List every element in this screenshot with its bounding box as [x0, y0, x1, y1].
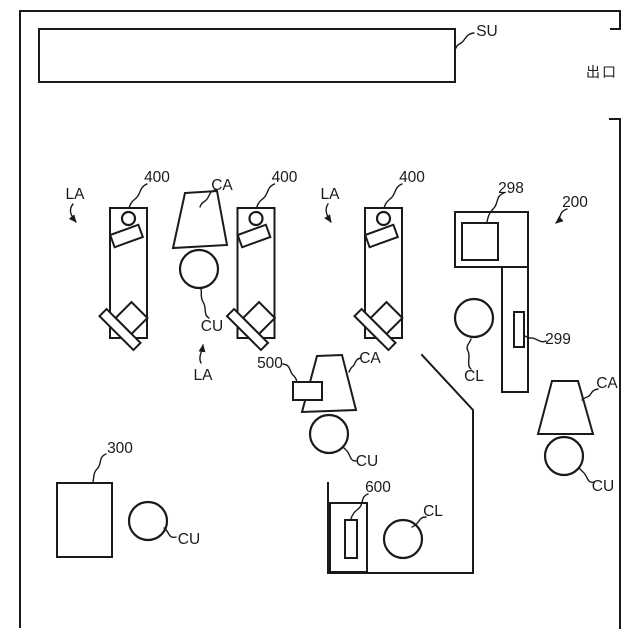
su-leader — [456, 33, 474, 48]
box-600-inner — [345, 520, 357, 558]
label-cu-3: CU — [592, 478, 614, 495]
cu-1-leader — [201, 289, 209, 318]
label-200: 200 — [562, 194, 588, 211]
label-la-1: LA — [66, 186, 86, 203]
rect-500 — [293, 382, 322, 400]
la-arrow-1 — [70, 204, 76, 222]
label-cu-1: CU — [201, 318, 223, 335]
label-su: SU — [476, 23, 498, 40]
trapezoid-ca-1 — [173, 191, 227, 248]
rect-299 — [514, 312, 524, 347]
trapezoid-ca-3 — [538, 381, 593, 434]
label-ca-3: CA — [596, 375, 618, 392]
station-400-2 — [227, 184, 275, 350]
circle-cu-4 — [129, 502, 167, 540]
la-arrow-2 — [326, 204, 331, 222]
cl-1-leader — [467, 339, 471, 369]
label-400-1: 400 — [144, 169, 170, 186]
label-cu-4: CU — [178, 531, 200, 548]
la-arrow-3 — [200, 345, 203, 363]
station-400-1 — [99, 184, 147, 350]
label-cl-1: CL — [464, 368, 484, 385]
label-exit: 出口 — [586, 64, 618, 80]
su-unit-rect — [39, 29, 455, 82]
leader-300 — [93, 454, 106, 482]
label-400-3: 400 — [399, 169, 425, 186]
patent-figure-page: SU 出口 400 400 400 LA LA LA CA CU 298 200… — [0, 0, 640, 640]
rect-298 — [462, 223, 498, 260]
cu-2-leader — [343, 447, 356, 461]
circle-cu-1 — [180, 250, 218, 288]
leader-500 — [283, 364, 297, 382]
label-cl-2: CL — [423, 503, 443, 520]
label-400-2: 400 — [272, 169, 298, 186]
label-600: 600 — [365, 479, 391, 496]
station-400-3 — [354, 184, 402, 350]
cu-4-leader — [164, 528, 176, 537]
arrow-200 — [556, 209, 567, 223]
label-500: 500 — [257, 355, 283, 372]
label-ca-2: CA — [359, 350, 381, 367]
label-la-3: LA — [194, 367, 214, 384]
label-cu-2: CU — [356, 453, 378, 470]
circle-cl-1 — [455, 299, 493, 337]
rect-300 — [57, 483, 112, 557]
circle-cu-3 — [545, 437, 583, 475]
label-la-2: LA — [321, 186, 341, 203]
label-ca-1: CA — [211, 177, 233, 194]
label-298: 298 — [498, 180, 524, 197]
label-299: 299 — [545, 331, 571, 348]
label-300: 300 — [107, 440, 133, 457]
room-border-right-lower — [610, 119, 620, 628]
circle-cu-2 — [310, 415, 348, 453]
circle-cl-2 — [384, 520, 422, 558]
layout-diagram: SU 出口 400 400 400 LA LA LA CA CU 298 200… — [0, 0, 640, 640]
